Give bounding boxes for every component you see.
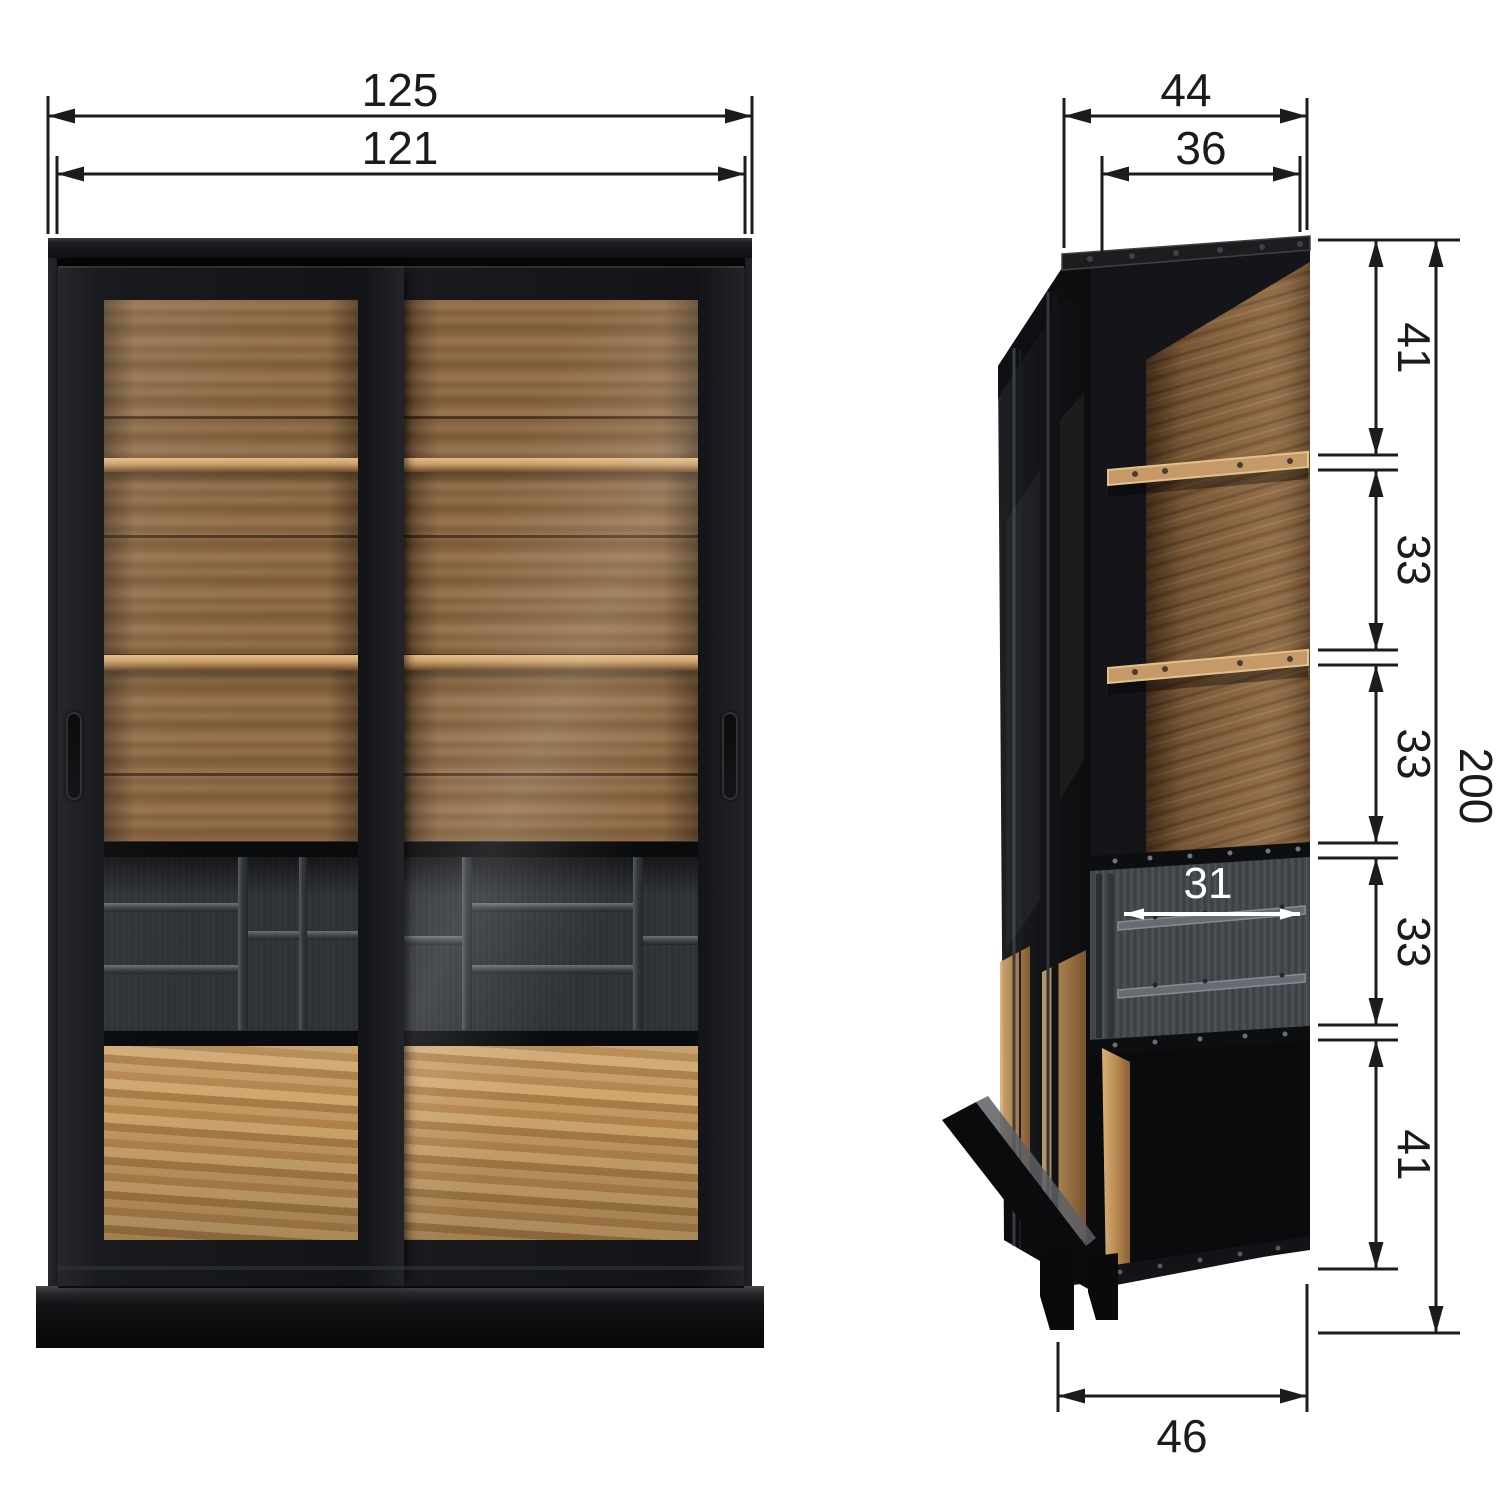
glass-reflection [104, 300, 358, 1240]
sliding-track [58, 1266, 744, 1270]
glass-reflection [404, 300, 698, 1240]
dim-inner-shelf-depth-label: 31 [1184, 859, 1233, 908]
dim-inner-width-label: 121 [362, 122, 439, 174]
sliding-door-right [358, 266, 744, 1288]
side-plinth-foot [1088, 1253, 1118, 1320]
door-handle-right [722, 712, 738, 800]
dim-overall-width-label: 125 [362, 64, 439, 116]
dim-segment-label: 41 [1388, 322, 1440, 373]
dim-segment-label: 33 [1388, 534, 1440, 585]
dim-overall-height-label: 200 [1450, 748, 1500, 825]
dim-inner-depth-label: 36 [1175, 122, 1226, 174]
side-plinth-foot [1040, 1246, 1074, 1330]
glass-reflection [1060, 392, 1084, 800]
sliding-door-left [58, 266, 404, 1288]
side-view [942, 236, 1310, 1330]
dim-base-depth-label: 46 [1156, 1410, 1207, 1462]
dim-segment-label: 33 [1388, 916, 1440, 967]
door-glass-left [104, 300, 358, 1240]
dim-segment-label: 33 [1388, 728, 1440, 779]
side-compartment-divider [1108, 874, 1114, 1038]
glass-reflection [1006, 470, 1040, 950]
side-drawer-edge [1102, 1048, 1130, 1278]
dim-overall-depth-label: 44 [1160, 64, 1211, 116]
door-glass-right [404, 300, 698, 1240]
side-back-panel-shade [1146, 262, 1310, 864]
side-compartment-divider [1096, 874, 1102, 1038]
cabinet-dimension-diagram: 125 121 44 36 [0, 0, 1500, 1500]
door-handle-left [66, 712, 82, 800]
dim-segment-label: 41 [1388, 1129, 1440, 1180]
